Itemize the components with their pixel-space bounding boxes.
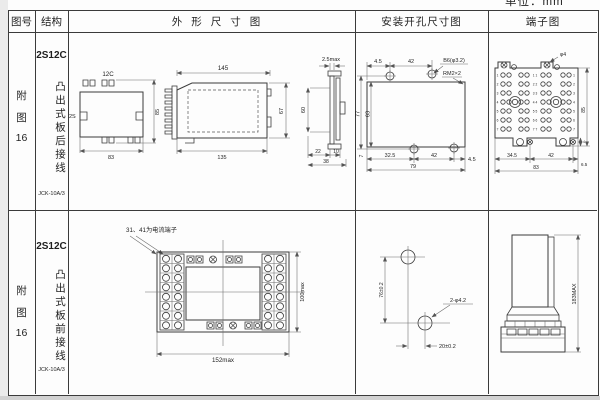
dim-label: 85 bbox=[155, 109, 161, 115]
current-terminal-note: 31、41为电流端子 bbox=[126, 226, 177, 234]
mounting-drawing-row2: 76±0.2 2-φ4.2 20±0.2 bbox=[355, 210, 488, 395]
bottom-terminal-screws bbox=[207, 322, 261, 329]
side-view: 145 135 67 bbox=[165, 65, 290, 161]
dim-label: 83 bbox=[108, 155, 114, 161]
svg-text:7: 7 bbox=[497, 127, 499, 131]
dim-label: 100max bbox=[300, 282, 306, 302]
dim-label: 22 bbox=[315, 149, 321, 155]
dim-label: 2S bbox=[69, 114, 76, 120]
svg-text:4 4: 4 4 bbox=[533, 100, 538, 104]
svg-text:6: 6 bbox=[573, 118, 575, 122]
terminal-profile-row2: 183MAX bbox=[488, 210, 598, 395]
svg-text:1 1: 1 1 bbox=[533, 73, 538, 77]
dim-label: 77 bbox=[356, 111, 362, 117]
svg-text:3 3: 3 3 bbox=[533, 91, 538, 95]
dim-label: 63 bbox=[366, 111, 372, 117]
dim-label: 32.5 bbox=[385, 153, 396, 159]
dim-label: 42 bbox=[548, 153, 554, 159]
svg-text:1: 1 bbox=[573, 73, 575, 77]
dim-label: 2.5max bbox=[322, 57, 340, 63]
svg-text:4: 4 bbox=[573, 100, 575, 104]
type-code-row1: JCK-10A/3 bbox=[35, 191, 68, 197]
bottom-tab-holes bbox=[517, 139, 576, 146]
front-view: 12C 2S 85 83 bbox=[69, 71, 161, 161]
mounting-drawing-row1: 4.5 42 B6(φ3.2) RM2×2 77 63 7 32.5 42 4.… bbox=[355, 32, 488, 210]
svg-text:2 2: 2 2 bbox=[533, 82, 538, 86]
dim-label: 20±0.2 bbox=[439, 344, 456, 350]
fig-number: 16 bbox=[16, 132, 28, 144]
model-row2: 2S12C bbox=[35, 241, 68, 252]
model-row1: 2S12C bbox=[35, 50, 68, 61]
dim-label: 4.5 bbox=[468, 157, 476, 163]
dim-label: 42 bbox=[431, 153, 437, 159]
hole-spec-label: B6(φ3.2) bbox=[443, 58, 465, 64]
dim-label: 34.5 bbox=[507, 153, 517, 159]
dim-label: 10 bbox=[333, 149, 339, 155]
mounting-holes bbox=[384, 68, 460, 155]
outline-drawing-front-wiring: 31、41为电流端子 bbox=[68, 210, 355, 395]
svg-text:1: 1 bbox=[497, 73, 499, 77]
svg-text:2: 2 bbox=[573, 82, 575, 86]
thread-spec-label: RM2×2 bbox=[443, 71, 461, 77]
fig-number: 16 bbox=[16, 327, 28, 339]
svg-text:4: 4 bbox=[497, 100, 499, 104]
dim-label: 183MAX bbox=[572, 283, 578, 304]
terminal-diagram-row1: φ4 1 2 3 4 5 6 7 1 1 2 2 3 3 4 4 5 5 6 6… bbox=[488, 32, 598, 210]
dim-label: 83 bbox=[533, 165, 539, 171]
svg-text:3: 3 bbox=[573, 91, 575, 95]
fig-char: 附 bbox=[16, 88, 27, 103]
header-mounting: 安装开孔尺寸图 bbox=[355, 10, 488, 32]
svg-text:7 7: 7 7 bbox=[533, 127, 538, 131]
header-outline: 外形尺寸图 bbox=[68, 10, 364, 32]
svg-text:6: 6 bbox=[497, 118, 499, 122]
dim-label: 6.5 bbox=[581, 162, 588, 167]
fig-char: 图 bbox=[16, 305, 27, 320]
dim-label: 79 bbox=[410, 164, 416, 170]
dim-label: 60 bbox=[301, 107, 307, 113]
structure-row1: 凸出式板后接线 bbox=[35, 72, 68, 184]
dim-label: 4.5 bbox=[374, 59, 382, 65]
dim-label: 42 bbox=[408, 59, 414, 65]
svg-text:5 5: 5 5 bbox=[533, 109, 538, 113]
outline-drawing-rear-wiring: 12C 2S 85 83 145 135 67 bbox=[68, 32, 355, 210]
svg-text:2: 2 bbox=[497, 82, 499, 86]
svg-text:3: 3 bbox=[497, 91, 499, 95]
dim-label: 145 bbox=[218, 65, 229, 72]
svg-text:5: 5 bbox=[497, 109, 499, 113]
svg-text:7: 7 bbox=[573, 127, 575, 131]
dim-label: 152max bbox=[212, 357, 235, 364]
dim-label: 38 bbox=[323, 159, 329, 165]
relay-side-profile bbox=[501, 235, 565, 352]
fig-char: 图 bbox=[16, 110, 27, 125]
structure-row2: 凸出式板前接线 bbox=[35, 262, 68, 370]
unit-label: 单位：mm bbox=[505, 0, 564, 9]
svg-text:5: 5 bbox=[573, 109, 575, 113]
header-structure: 结构 bbox=[35, 10, 68, 32]
page-left-margin bbox=[0, 0, 8, 400]
top-terminal-screws bbox=[187, 256, 242, 263]
hole-spec-label: φ4 bbox=[560, 52, 566, 58]
hole-spec-label: 2-φ4.2 bbox=[450, 298, 466, 304]
dim-label: 85 bbox=[581, 107, 587, 113]
page-bottom-margin bbox=[0, 396, 600, 400]
edge-view: 2.5max 60 22 10 38 bbox=[301, 57, 346, 167]
dim-label: 76±0.2 bbox=[379, 282, 385, 297]
dim-label: 12C bbox=[102, 71, 114, 78]
dim-label: 4 bbox=[583, 140, 585, 144]
header-terminal: 端子图 bbox=[488, 10, 598, 32]
header-fig-no: 图号 bbox=[8, 10, 35, 32]
dim-label: 67 bbox=[279, 108, 285, 114]
fig-no-row1: 附 图 16 bbox=[8, 88, 35, 144]
svg-text:6 6: 6 6 bbox=[533, 118, 538, 122]
fig-char: 附 bbox=[16, 283, 27, 298]
dim-label: 135 bbox=[217, 155, 226, 161]
datasheet-page: 单位：mm 图号 结构 外形尺寸图 安装开孔尺寸图 端子图 附 图 16 2S1… bbox=[0, 0, 600, 400]
type-code-row2: JCK-10A/3 bbox=[35, 367, 68, 373]
fig-no-row2: 附 图 16 bbox=[8, 283, 35, 339]
dim-label: 7 bbox=[359, 154, 365, 157]
